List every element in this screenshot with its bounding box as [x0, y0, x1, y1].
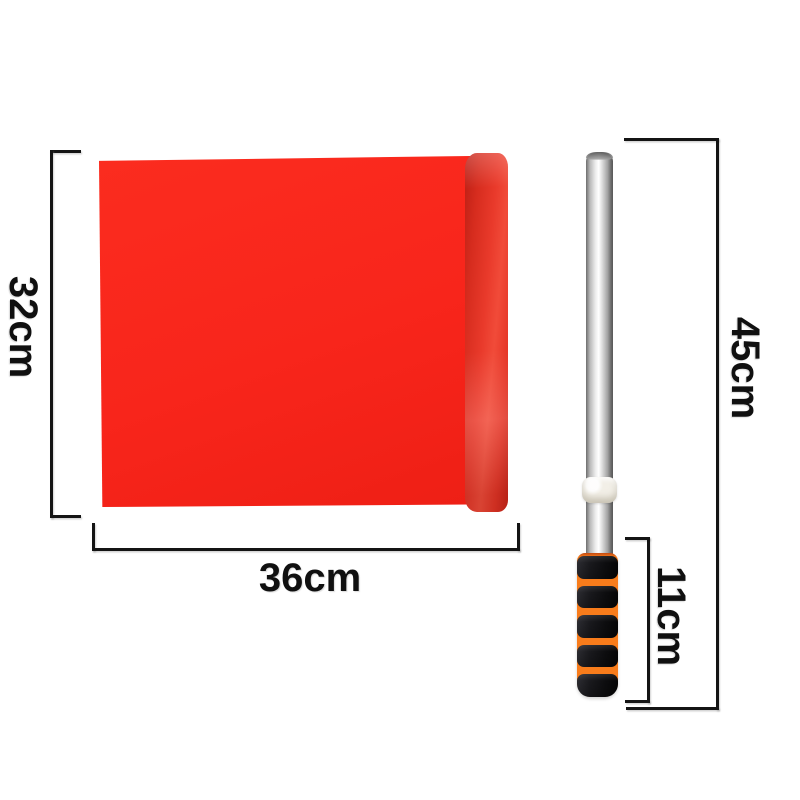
pole-length-top-tick	[624, 138, 719, 141]
flag-pole-sleeve	[465, 153, 508, 512]
pole-length-label: 45cm	[723, 278, 767, 458]
flag-width-left-tick	[92, 523, 95, 551]
grip-segment	[577, 556, 618, 579]
pole-length-extent-line	[716, 138, 719, 710]
product-dimension-diagram: 32cm 36cm 45cm 11cm	[0, 0, 800, 800]
foam-grip-handle	[577, 553, 618, 697]
pole-length-bottom-tick	[626, 707, 719, 710]
grip-segment	[577, 674, 618, 697]
flag-body	[99, 156, 470, 507]
grip-segment	[577, 645, 618, 668]
handle-length-bottom-tick	[625, 700, 650, 703]
flag-height-label: 32cm	[1, 237, 45, 417]
grip-segment	[577, 615, 618, 638]
flag-width-label: 36cm	[220, 556, 400, 600]
grip-segment	[577, 586, 618, 609]
flag-height-top-tick	[50, 150, 81, 153]
velcro-band	[582, 477, 617, 503]
flag-height-bottom-tick	[50, 515, 81, 518]
flag-height-extent-line	[50, 150, 53, 518]
flag-width-extent-line	[92, 548, 520, 551]
handle-length-label: 11cm	[649, 526, 693, 706]
flag-width-right-tick	[517, 523, 520, 551]
